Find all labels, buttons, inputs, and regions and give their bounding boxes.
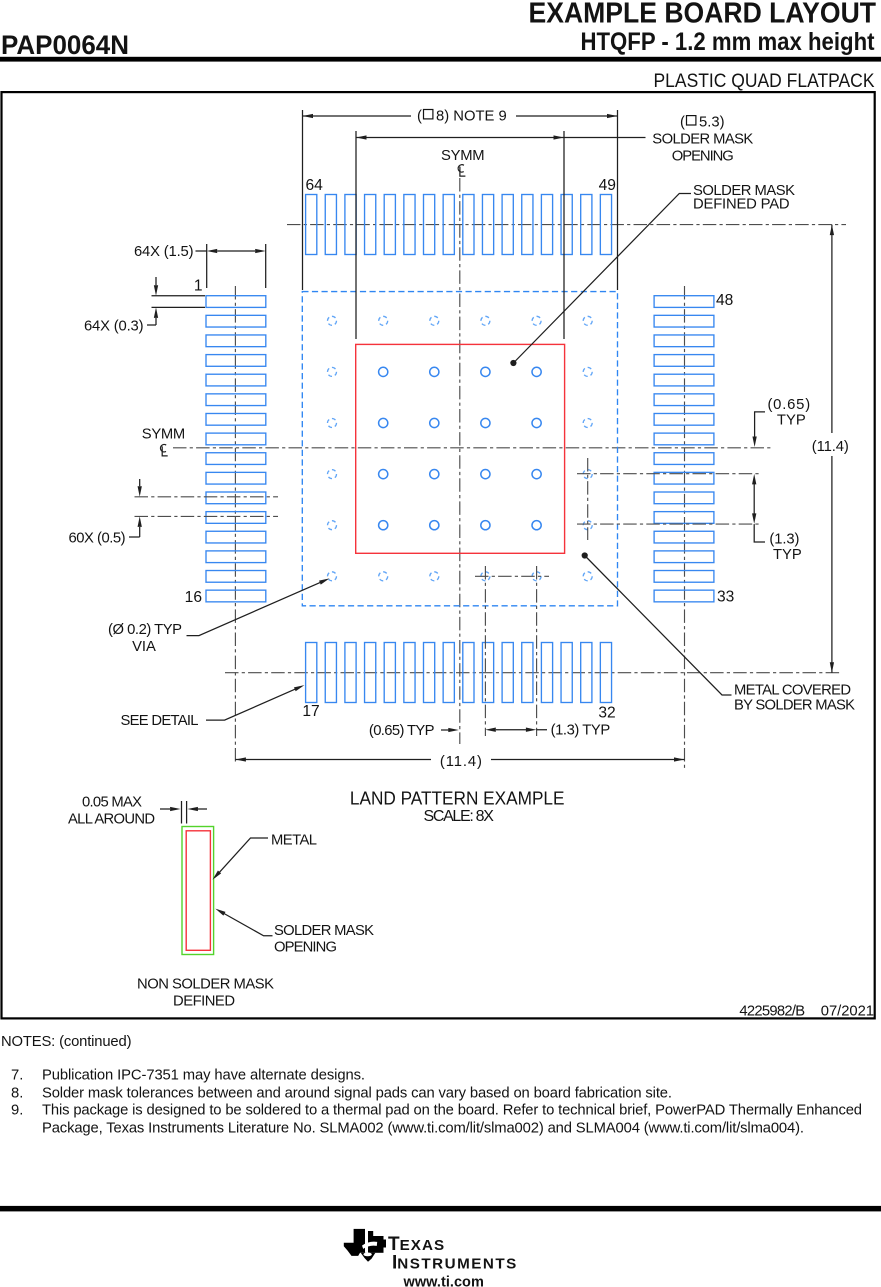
- svg-text:SEE DETAIL: SEE DETAIL: [121, 713, 199, 729]
- svg-text:SOLDER MASK: SOLDER MASK: [652, 132, 753, 148]
- svg-text:64X (0.3): 64X (0.3): [84, 319, 144, 335]
- svg-text:ALL AROUND: ALL AROUND: [68, 811, 155, 827]
- svg-text:33: 33: [717, 589, 734, 606]
- svg-text:TYP: TYP: [773, 547, 802, 563]
- svg-text:17: 17: [302, 703, 319, 720]
- svg-text:DEFINED PAD: DEFINED PAD: [693, 196, 790, 212]
- svg-text:5.3): 5.3): [699, 115, 725, 131]
- svg-text:(Ø 0.2) TYP: (Ø 0.2) TYP: [108, 622, 182, 638]
- svg-text:HTQFP - 1.2 mm max height: HTQFP - 1.2 mm max height: [581, 28, 876, 56]
- svg-text:32: 32: [598, 704, 615, 721]
- svg-text:48: 48: [716, 292, 733, 309]
- svg-text:0.05 MAX: 0.05 MAX: [82, 794, 142, 810]
- svg-text:9.: 9.: [11, 1103, 23, 1119]
- svg-text:Solder mask tolerances between: Solder mask tolerances between and aroun…: [42, 1086, 672, 1102]
- svg-text:METAL: METAL: [271, 833, 317, 849]
- svg-text:SYMM: SYMM: [441, 148, 485, 164]
- svg-text:OPENING: OPENING: [274, 940, 337, 956]
- svg-text:SOLDER MASK: SOLDER MASK: [274, 923, 374, 939]
- svg-text:(: (: [680, 115, 685, 131]
- svg-text:SCALE: 8X: SCALE: 8X: [423, 808, 494, 825]
- svg-text:16: 16: [185, 589, 202, 606]
- svg-text:(11.4): (11.4): [812, 439, 849, 455]
- svg-text:(0.65): (0.65): [767, 397, 810, 413]
- svg-text:64: 64: [306, 177, 324, 194]
- svg-text:PAP0064N: PAP0064N: [1, 30, 129, 60]
- svg-text:07/2021: 07/2021: [821, 1003, 874, 1019]
- svg-text:Publication IPC-7351 may have: Publication IPC-7351 may have alternate …: [42, 1068, 365, 1084]
- svg-text:(11.4): (11.4): [440, 754, 482, 770]
- svg-text:NOTES: (continued): NOTES: (continued): [1, 1034, 132, 1050]
- svg-text:www.ti.com: www.ti.com: [403, 1275, 484, 1287]
- svg-text:Package, Texas Instruments Lit: Package, Texas Instruments Literature No…: [42, 1121, 804, 1137]
- svg-text:This package is designed to be: This package is designed to be soldered …: [42, 1103, 862, 1119]
- svg-text:1: 1: [194, 278, 203, 295]
- svg-text:(1.3): (1.3): [769, 532, 799, 548]
- svg-text:EXAMPLE BOARD LAYOUT: EXAMPLE BOARD LAYOUT: [529, 0, 877, 30]
- svg-text:(: (: [417, 109, 422, 125]
- svg-text:(1.3) TYP: (1.3) TYP: [551, 723, 611, 739]
- svg-text:VIA: VIA: [132, 639, 156, 655]
- svg-text:METAL COVERED: METAL COVERED: [734, 683, 851, 699]
- svg-text:NON SOLDER MASK: NON SOLDER MASK: [137, 977, 274, 993]
- svg-text:BY SOLDER MASK: BY SOLDER MASK: [734, 698, 855, 714]
- svg-text:8.: 8.: [11, 1086, 23, 1102]
- svg-text:7.: 7.: [11, 1068, 23, 1084]
- svg-text:PLASTIC QUAD FLATPACK: PLASTIC QUAD FLATPACK: [654, 70, 875, 92]
- svg-text:49: 49: [599, 177, 616, 194]
- svg-text:DEFINED: DEFINED: [173, 994, 235, 1010]
- svg-text:64X (1.5): 64X (1.5): [134, 244, 194, 260]
- svg-text:SYMM: SYMM: [142, 426, 186, 442]
- svg-text:TYP: TYP: [777, 412, 806, 428]
- svg-text:4225982/B: 4225982/B: [739, 1003, 805, 1019]
- svg-text:LAND PATTERN EXAMPLE: LAND PATTERN EXAMPLE: [350, 787, 565, 808]
- svg-text:OPENING: OPENING: [672, 149, 734, 165]
- svg-text:INSTRUMENTS: INSTRUMENTS: [392, 1253, 516, 1274]
- svg-text:(0.65) TYP: (0.65) TYP: [369, 723, 435, 739]
- svg-text:60X (0.5): 60X (0.5): [69, 531, 126, 547]
- svg-text:8) NOTE 9: 8) NOTE 9: [436, 109, 507, 125]
